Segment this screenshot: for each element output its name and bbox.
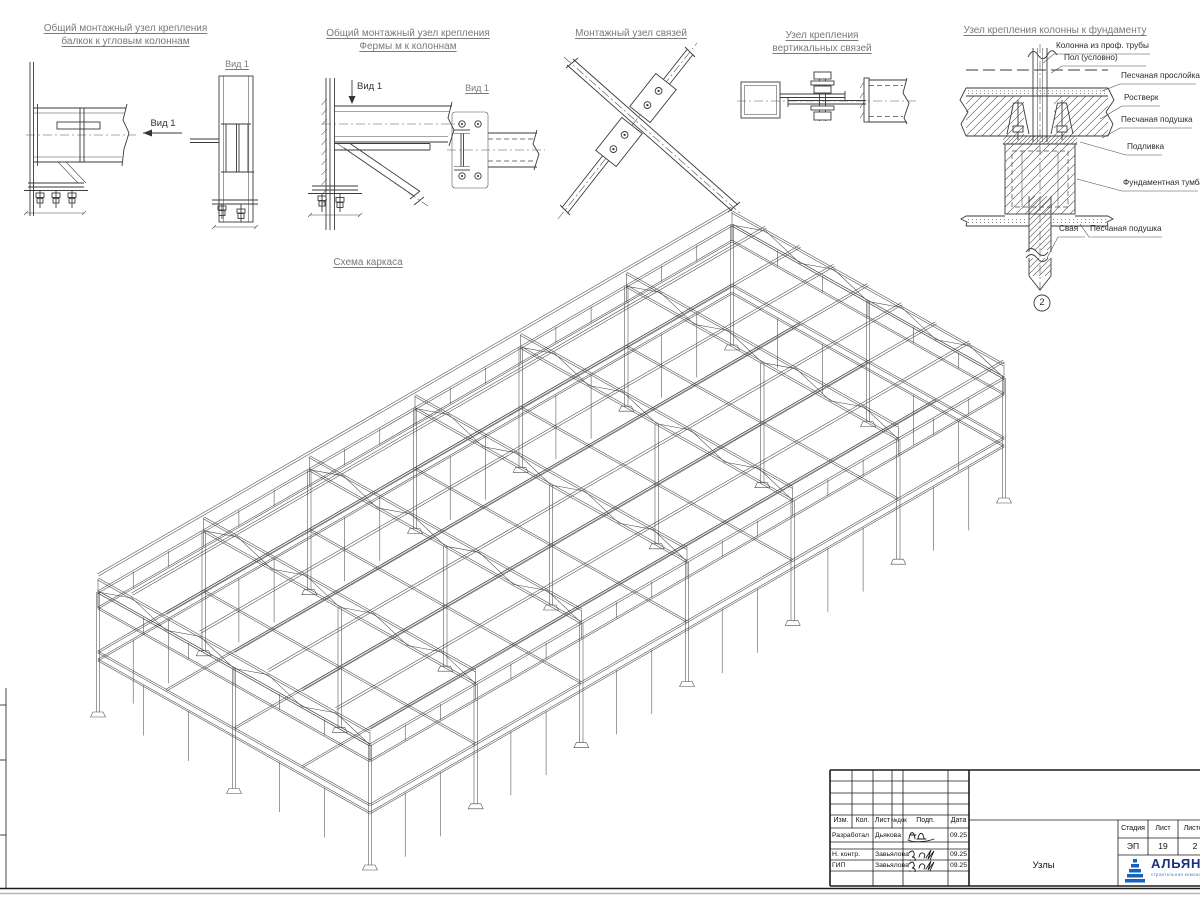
view1-label: Вид 1 — [217, 59, 257, 69]
alliance-triangle-icon — [1124, 857, 1146, 883]
label-sand-cushion-2: Песчаная подушка — [1090, 224, 1162, 233]
detail-truss-column-view1 — [447, 112, 545, 188]
tb-sheets-value: 2 — [1178, 841, 1200, 851]
detail-truss-to-column — [308, 78, 460, 230]
tb-name-ncontrol: Завьялова — [875, 851, 909, 858]
label-sand-interlayer: Песчаная прослойка — [1121, 71, 1200, 80]
tb-header-izm: Изм. — [830, 817, 852, 824]
drawing-sheet: Общий монтажный узел крепления балкок к … — [0, 0, 1200, 900]
scheme-title: Схема каркаса — [325, 256, 411, 269]
tb-stage-header: Стадия — [1118, 825, 1148, 832]
label-grout: Подливка — [1127, 142, 1164, 151]
tb-header-kol: Кол. — [852, 817, 873, 824]
tb-stage-value: ЭП — [1118, 841, 1148, 851]
logo-text: АЛЬЯНС — [1151, 857, 1200, 871]
tb-role-ncontrol: Н. контр. — [832, 851, 860, 858]
detail-beam-to-corner-column — [24, 62, 182, 216]
detail3-title: Монтажный узел связей — [566, 27, 696, 40]
view1-arrow-label: Вид 1 — [146, 118, 180, 129]
tb-name-developer: Дьякова — [875, 832, 901, 839]
tb-header-list: Лист — [873, 817, 892, 824]
view1-label-2: Вид 1 — [459, 83, 495, 93]
label-grillage: Ростверк — [1124, 93, 1158, 102]
logo-subtext: строительная компания — [1151, 872, 1200, 877]
detail2-title: Общий монтажный узел крепления Фермы м к… — [318, 27, 498, 53]
label-floor: Пол (условно) — [1064, 53, 1118, 62]
detail-beam-column-view1 — [190, 76, 258, 229]
detail-vertical-brace-node — [737, 72, 916, 124]
signature-icon — [906, 828, 942, 842]
label-column-tube: Колонна из проф. трубы — [1056, 41, 1149, 50]
detail-bracing-node — [558, 43, 741, 219]
detail-marker: 2 — [1036, 297, 1048, 307]
tb-role-gip: ГИП — [832, 862, 845, 869]
tb-doc-title: Узлы — [969, 860, 1118, 871]
tb-date-gip: 09.25 — [948, 862, 969, 869]
label-pile: Свая — [1059, 224, 1078, 233]
tb-header-podp: Подп. — [903, 817, 948, 824]
drawing-canvas — [0, 0, 1200, 900]
company-logo: АЛЬЯНС строительная компания — [1124, 857, 1200, 883]
tb-sheets-header: Листов — [1178, 825, 1200, 832]
tb-role-developer: Разработал — [832, 832, 869, 839]
tb-date-ncontrol: 09.25 — [948, 851, 969, 858]
tb-sheet-header: Лист — [1148, 825, 1178, 832]
detail4-title: Узел крепления вертикальных связей — [762, 29, 882, 55]
detail1-title: Общий монтажный узел крепления балкок к … — [28, 22, 223, 48]
label-sand-cushion-1: Песчаная подушка — [1121, 115, 1193, 124]
tb-header-data: Дата — [948, 817, 969, 824]
signature-icon — [906, 860, 942, 872]
tb-name-gip: Завьялова — [875, 862, 909, 869]
view1-arrow-label-2: Вид 1 — [357, 81, 391, 92]
tb-sheet-value: 19 — [1148, 841, 1178, 851]
label-foundation-pedestal: Фундаментная тумба — [1123, 178, 1200, 187]
tb-date-developer: 09.25 — [948, 832, 969, 839]
detail5-title: Узел крепления колонны к фундаменту — [955, 24, 1155, 37]
